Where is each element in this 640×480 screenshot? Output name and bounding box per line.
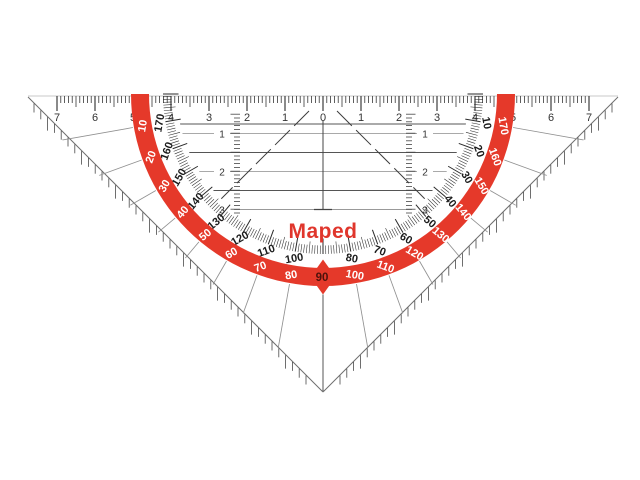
set-square-graphic: 7654321012345671122331701601501401301201…	[0, 0, 640, 480]
ruler-number: 7	[586, 112, 592, 124]
ruler-number: 6	[548, 112, 554, 124]
ruler-number: 3	[206, 112, 212, 124]
inner-degree-number: 10	[479, 116, 493, 130]
ninety-pointer-label: 90	[316, 272, 329, 284]
ruler-number: 7	[54, 112, 60, 124]
right-scale-number: 1	[422, 129, 428, 140]
brand-logo: Maped	[288, 220, 357, 243]
ruler-number: 2	[396, 112, 402, 124]
outer-degree-number: 10	[136, 119, 150, 133]
left-scale-number: 1	[219, 129, 225, 140]
ruler-number: 3	[434, 112, 440, 124]
ruler-number: 2	[244, 112, 250, 124]
left-scale-number: 2	[219, 167, 225, 178]
ruler-number: 1	[282, 112, 288, 124]
product-image-geometry-set-square: 7654321012345671122331701601501401301201…	[0, 0, 640, 480]
ruler-number: 6	[92, 112, 98, 124]
ruler-number: 1	[358, 112, 364, 124]
inner-degree-number: 80	[345, 252, 359, 266]
outer-degree-number: 80	[284, 269, 298, 283]
right-scale-number: 2	[422, 167, 428, 178]
